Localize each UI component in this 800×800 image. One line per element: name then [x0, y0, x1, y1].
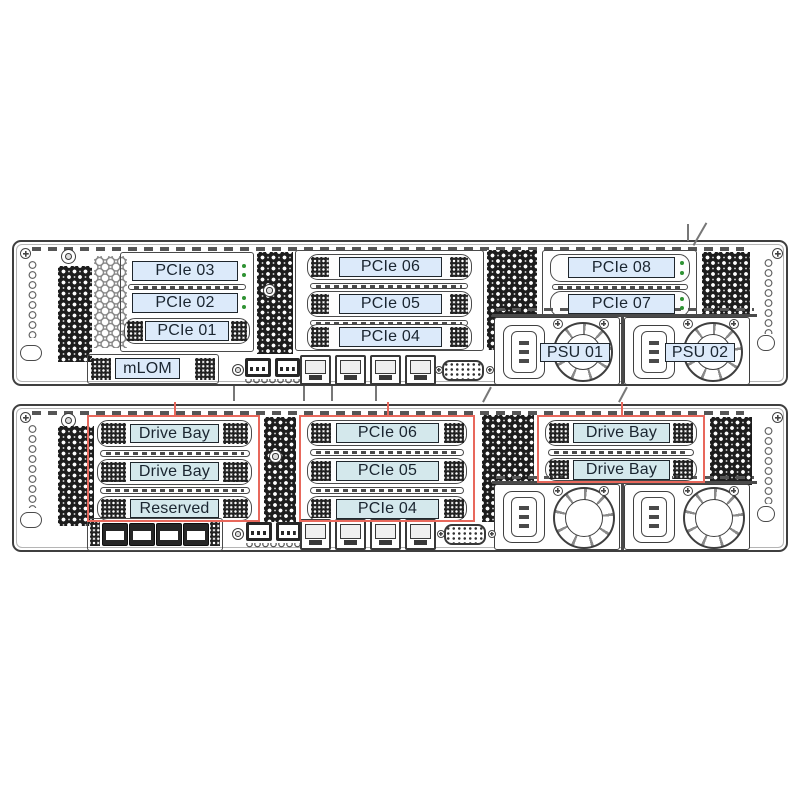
ethernet-port — [300, 355, 331, 385]
ethernet-port — [335, 519, 366, 550]
latch-handle — [20, 345, 42, 361]
ethernet-port — [405, 355, 436, 385]
slot-label-reserved: Reserved — [130, 499, 219, 518]
slot-perforation — [91, 358, 111, 380]
psu-bay-2 — [624, 484, 750, 550]
slot-label-pcie-03: PCIe 03 — [132, 261, 238, 281]
slot-label-pcie-01: PCIe 01 — [145, 321, 229, 341]
slot-perforation — [549, 423, 569, 443]
led-indicator — [242, 296, 246, 300]
led-indicator — [242, 305, 246, 309]
slot-perforation — [549, 460, 569, 479]
slot-perforation — [450, 327, 468, 347]
led-indicator — [242, 264, 246, 268]
diagram-canvas: { "figure": { "highlight_color": "#e8685… — [0, 0, 800, 800]
screw-icon — [599, 486, 609, 496]
slot-perforation — [223, 423, 248, 444]
vent-holes-column — [28, 424, 37, 508]
slot-perforation — [311, 257, 329, 277]
slot-perforation — [311, 327, 329, 347]
reset-button — [232, 364, 244, 376]
screw-icon — [553, 319, 563, 329]
slot-perforation — [210, 522, 220, 546]
thumbscrew-icon — [269, 450, 282, 463]
callout-leader-line — [482, 387, 491, 403]
slot-perforation — [444, 499, 464, 518]
screw-icon — [772, 412, 783, 423]
slot-perforation — [444, 423, 464, 443]
network-port — [129, 523, 155, 546]
slot-label-pcie-08: PCIe 08 — [568, 257, 675, 278]
power-inlet — [503, 491, 545, 543]
screw-icon — [729, 319, 739, 329]
slot-label-pcie-04: PCIe 04 — [339, 327, 442, 347]
slot-perforation — [223, 462, 248, 482]
slot-label-drive-bay-1: Drive Bay — [130, 424, 219, 443]
perforated-divider — [310, 283, 468, 289]
vent-honeycomb — [710, 417, 752, 485]
vent-holes-column — [764, 426, 773, 504]
slot-label-pcie-06: PCIe 06 — [339, 257, 442, 277]
slot-perforation — [311, 499, 331, 518]
latch-handle — [757, 506, 775, 522]
callout-leader-line — [618, 387, 627, 403]
slot-perforation — [101, 462, 126, 482]
usb-port — [245, 358, 271, 377]
slot-label-pcie-07: PCIe 07 — [568, 294, 675, 314]
ethernet-port — [405, 519, 436, 550]
latch-handle — [757, 335, 775, 351]
vent-honeycomb — [264, 417, 296, 522]
led-indicator — [680, 271, 684, 275]
vent-honeycomb — [702, 252, 750, 316]
vent-holes-column — [764, 258, 773, 334]
slot-label-pcie-04: PCIe 04 — [336, 499, 439, 519]
perforated-divider — [128, 284, 246, 290]
slot-perforation — [223, 499, 248, 518]
screw-icon — [772, 248, 783, 259]
screw-icon — [20, 412, 31, 423]
reset-button — [232, 528, 244, 540]
ethernet-port — [335, 355, 366, 385]
slot-label-pcie-06: PCIe 06 — [336, 423, 439, 443]
slot-label-drive-bay-4: Drive Bay — [573, 460, 670, 480]
ethernet-port — [370, 355, 401, 385]
network-port — [156, 523, 182, 546]
thumbscrew-icon — [263, 284, 276, 297]
power-inlet — [633, 491, 675, 543]
vga-port — [442, 360, 484, 381]
slot-perforation — [673, 460, 693, 479]
screw-icon — [488, 530, 496, 538]
vent-scallops — [246, 543, 301, 549]
ethernet-port — [300, 519, 331, 550]
slot-perforation — [101, 499, 126, 518]
screw-icon — [683, 486, 693, 496]
slot-perforation — [444, 461, 464, 481]
vent-holes-column — [28, 260, 37, 338]
led-indicator — [680, 306, 684, 310]
slot-perforation — [90, 522, 100, 546]
screw-icon — [20, 248, 31, 259]
screw-icon — [437, 530, 445, 538]
vent-honeycomb — [257, 252, 293, 354]
vent-scallops — [245, 379, 300, 385]
slot-perforation — [195, 358, 215, 380]
slot-label-drive-bay-2: Drive Bay — [130, 462, 219, 481]
slot-perforation — [101, 423, 126, 444]
screw-icon — [599, 319, 609, 329]
slot-label-pcie-05: PCIe 05 — [336, 461, 439, 481]
callout-leader-line — [303, 386, 305, 401]
screw-icon — [486, 366, 494, 374]
psu-02-label: PSU 02 — [665, 343, 735, 362]
callout-leader-line — [331, 386, 333, 401]
led-indicator — [242, 273, 246, 277]
screw-icon — [729, 486, 739, 496]
slot-label-drive-bay-3: Drive Bay — [573, 423, 670, 443]
power-inlet — [503, 325, 545, 379]
network-port — [183, 523, 209, 546]
latch-handle — [20, 512, 42, 528]
vent-honeycomb — [58, 266, 92, 362]
psu-01-label: PSU 01 — [540, 343, 610, 362]
led-indicator — [680, 297, 684, 301]
network-port — [102, 523, 128, 546]
slot-perforation — [231, 321, 247, 341]
slot-perforation — [311, 423, 331, 443]
screw-icon — [683, 319, 693, 329]
slot-perforation — [673, 423, 693, 443]
usb-port — [275, 358, 300, 377]
usb-port — [246, 522, 272, 541]
ethernet-port — [370, 519, 401, 550]
callout-leader-line — [375, 386, 377, 401]
slot-perforation — [127, 321, 143, 341]
slot-perforation — [311, 294, 329, 314]
slot-label-pcie-02: PCIe 02 — [132, 293, 238, 313]
perforated-divider — [552, 284, 688, 290]
usb-port — [276, 522, 301, 541]
psu-fan — [553, 487, 615, 549]
chassis-top-rear-view: PCIe 03 PCIe 02 PCIe 01 PCIe 06 PCIe 05 … — [12, 240, 788, 386]
callout-leader-line — [687, 224, 689, 241]
slot-label-pcie-05: PCIe 05 — [339, 294, 442, 314]
psu-bay-1 — [494, 484, 620, 550]
slot-perforation — [450, 294, 468, 314]
screw-icon — [435, 366, 443, 374]
screw-icon — [553, 486, 563, 496]
chassis-bottom-rear-view: Drive Bay Drive Bay Reserved PCIe 06 PCI… — [12, 404, 788, 552]
thumbscrew-icon — [61, 249, 76, 264]
led-indicator — [680, 261, 684, 265]
psu-fan — [683, 487, 745, 549]
slot-perforation — [311, 461, 331, 481]
mlom-label: mLOM — [115, 358, 180, 379]
vga-port — [444, 524, 486, 545]
slot-perforation — [450, 257, 468, 277]
callout-leader-line — [233, 386, 235, 401]
